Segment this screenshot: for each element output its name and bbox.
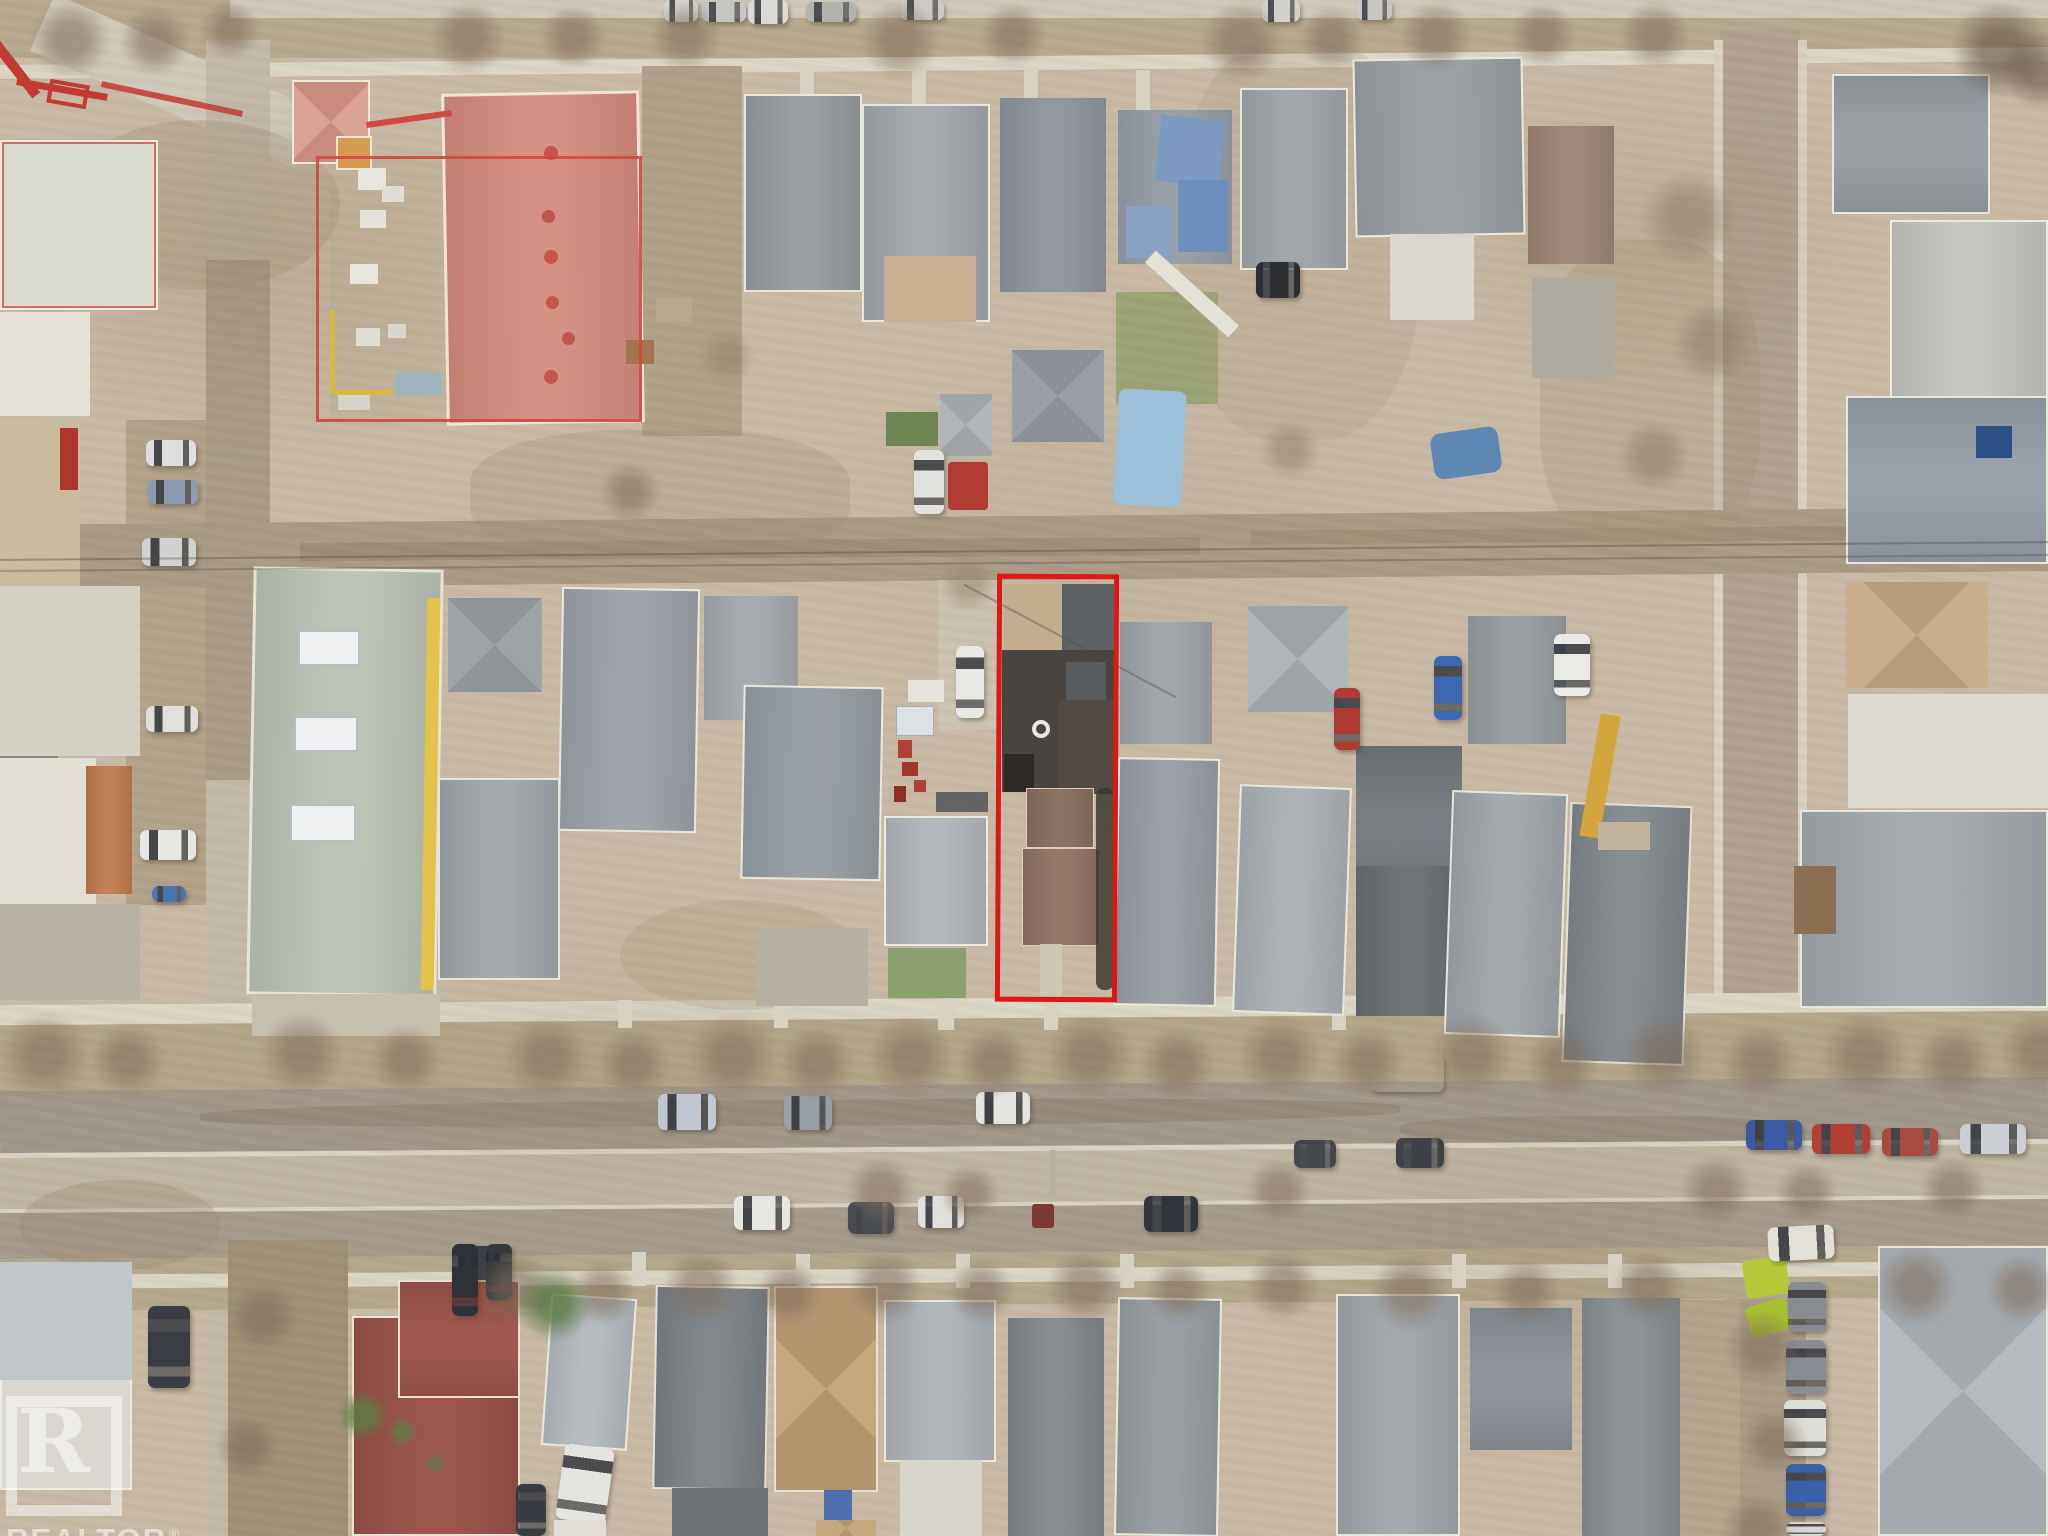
bare-tree [430, 0, 506, 76]
blue-tarp-patch-2 [1178, 180, 1228, 252]
bare-tree [1620, 0, 1690, 70]
boulevard-tree [1722, 1024, 1798, 1100]
red-car [1334, 688, 1360, 750]
boulevard-tree [1622, 1014, 1706, 1098]
blue-cart [152, 886, 186, 902]
ne-house-2 [1890, 220, 2048, 400]
parked-car [142, 538, 196, 566]
east-house-2 [1232, 784, 1352, 1016]
boulevard-tree [1046, 1012, 1134, 1100]
boulevard-tree [1140, 1026, 1216, 1102]
gray-flat-building [0, 904, 140, 1000]
brown-shed [1794, 866, 1836, 934]
street-car-white [734, 1196, 790, 1230]
south-house-9 [1470, 1308, 1572, 1450]
lot-west-canopy [908, 680, 944, 702]
red-equipment [914, 780, 926, 792]
white-building-west [0, 312, 90, 416]
front-walk [1452, 1254, 1466, 1288]
realtor-logo-letter: R [17, 1403, 90, 1480]
street-car-dark [1144, 1196, 1198, 1232]
top-street-pavement [230, 0, 2048, 18]
boulevard-tree [1428, 1012, 1514, 1098]
s-boulevard-tree [948, 1258, 1014, 1324]
lot-west-lawn [888, 948, 966, 998]
median-tree [1776, 1162, 1838, 1224]
street-tree [1740, 1408, 1808, 1476]
se-parked-car-blue [1786, 1464, 1826, 1516]
s-boulevard-tree [1612, 1250, 1686, 1324]
boulevard-tree [1332, 1026, 1404, 1098]
white-building-southwest [0, 758, 96, 906]
east-house-1 [1114, 757, 1220, 1007]
house-north-3 [1000, 98, 1106, 292]
parked-car [148, 480, 198, 504]
east-garage-1 [1120, 622, 1212, 744]
bare-tree [980, 2, 1046, 68]
sw-dark-car [148, 1306, 190, 1388]
bare-tree [1400, 0, 1472, 72]
south-house-5-extension [900, 1460, 982, 1536]
garage-north-7 [1532, 278, 1614, 378]
street-car [658, 1094, 716, 1130]
dirt-patch-6 [20, 1180, 220, 1270]
bare-tree [1510, 2, 1576, 68]
s-boulevard-tree [1370, 1252, 1450, 1332]
red-equipment [902, 762, 918, 776]
yard-tree [1672, 300, 1756, 384]
boulevard-tree [780, 1026, 854, 1100]
green-bush [424, 1452, 446, 1474]
white-pickup [1554, 634, 1590, 696]
mid-house-4 [740, 685, 883, 881]
picnic-table [656, 298, 692, 322]
blue-car [1434, 656, 1462, 720]
east-house-4 [1468, 616, 1566, 744]
realtor-wordmark: REALTOR [6, 1522, 167, 1536]
se-parked-car [1788, 1282, 1826, 1332]
boulevard-tree [868, 1014, 954, 1100]
crane-base [1598, 822, 1650, 850]
street-tree [1724, 1310, 1800, 1386]
south-house-3-extension [672, 1488, 768, 1536]
red-bin [1032, 1204, 1054, 1228]
white-van [956, 646, 984, 718]
street-car-dark [1294, 1140, 1336, 1168]
front-walk [632, 1252, 646, 1286]
boat-on-trailer [1429, 425, 1503, 480]
boulevard-tree [598, 1028, 670, 1100]
lot-west-neighbor-house [884, 816, 988, 946]
south-house-5 [884, 1300, 996, 1462]
pool-tarp [1113, 388, 1187, 507]
mid-house-1 [438, 778, 560, 980]
yard-tree [1618, 420, 1690, 492]
parked-car [1356, 0, 1392, 20]
green-tree [516, 1266, 592, 1342]
skylight [294, 716, 358, 752]
front-walk [1044, 1000, 1058, 1030]
bare-tree [540, 4, 606, 70]
south-vacant-lot [228, 1240, 348, 1536]
s-boulevard-tree [1146, 1258, 1212, 1324]
s-boulevard-tree [1246, 1248, 1320, 1322]
s-boulevard-tree [1492, 1258, 1560, 1326]
parked-car [146, 706, 198, 732]
blue-tarp-patch-1 [1155, 115, 1226, 187]
boulevard-tree [505, 1016, 589, 1100]
median-tree [846, 1156, 916, 1226]
s-boulevard-tree [1046, 1248, 1124, 1326]
red-crane-cab [46, 79, 90, 110]
house-north-1 [744, 94, 862, 292]
green-tree [338, 1390, 388, 1440]
parked-car [748, 0, 788, 24]
terracotta-roof-section [86, 766, 132, 894]
boulevard-tree [958, 1026, 1030, 1098]
median-tree [1680, 1154, 1752, 1226]
east-house-5 [1444, 790, 1568, 1038]
bare-tree [860, 0, 940, 80]
s-boulevard-tree [1986, 1254, 2048, 1324]
ne-house-1 [1832, 74, 1990, 214]
south-tarp-blue [824, 1490, 852, 1520]
white-rv [554, 1520, 606, 1536]
lot-west-panel [896, 706, 934, 736]
realtor-watermark: R REALTOR® [6, 1396, 181, 1536]
road-mud-smear [1400, 1116, 1800, 1142]
bare-tree [1300, 6, 1364, 70]
red-trailer [948, 462, 988, 510]
property-highlight-outline [995, 574, 1119, 1003]
skylight [298, 630, 360, 666]
east-garage-2 [1248, 606, 1348, 712]
skylight [290, 804, 356, 842]
s-boulevard-tree [848, 1248, 924, 1324]
bare-tree [30, 0, 110, 80]
black-car [1256, 262, 1300, 298]
front-walk [618, 1000, 632, 1028]
house-north-6 [1352, 57, 1525, 238]
south-house-6 [1008, 1318, 1104, 1536]
dark-suv [452, 1244, 478, 1316]
south-house-7 [1114, 1297, 1222, 1536]
parked-car [806, 2, 856, 22]
yard-tree [1260, 420, 1320, 480]
parked-car [146, 440, 196, 466]
median-tree [1920, 1156, 1986, 1222]
bare-tree [1200, 0, 1284, 84]
mid-commercial-flat [0, 586, 140, 756]
white-suv [555, 1443, 615, 1525]
red-equipment [894, 786, 906, 802]
street-tree [228, 1282, 298, 1352]
red-fence-gate [366, 110, 452, 128]
street-car-blue [1746, 1120, 1802, 1150]
dirt-patch-2 [470, 430, 850, 560]
truck-with-crane [1767, 1224, 1835, 1261]
white-car-backyard [914, 450, 944, 514]
green-shed [886, 412, 938, 446]
front-walk [1136, 70, 1150, 110]
street-tree [216, 1416, 278, 1478]
street-car-red [1882, 1128, 1938, 1156]
median-tree [1246, 1158, 1312, 1224]
ne-house-3 [1846, 396, 2048, 564]
red-fence-outline [316, 156, 642, 422]
roof-hatch-blue [1976, 426, 2012, 458]
nw-building-red-trim [2, 142, 156, 308]
green-dumpster [1742, 1255, 1791, 1299]
registered-symbol: ® [169, 1526, 181, 1536]
house-north-6-addition [1390, 234, 1474, 320]
car-parts-pile [936, 792, 988, 812]
boulevard-tree [1238, 1014, 1322, 1098]
bare-tree [200, 0, 260, 60]
garage-east-of-green-building [448, 598, 542, 692]
ne-house-5 [1800, 810, 2048, 1008]
parked-car [140, 830, 196, 860]
boulevard-tree [1820, 1012, 1908, 1100]
boulevard-tree [0, 1010, 90, 1100]
garage-north-1 [940, 394, 992, 456]
house-north-3-rear-hip [1012, 350, 1104, 442]
boulevard-tree [1916, 1024, 1992, 1100]
bare-tree [120, 6, 190, 76]
yard-tree [1640, 170, 1736, 266]
rooftop-sign-red [60, 428, 78, 490]
south-house-10 [1582, 1298, 1680, 1536]
s-boulevard-tree [756, 1260, 822, 1326]
boulevard-tree [260, 1012, 344, 1096]
realtor-wordmark-row: REALTOR® [6, 1522, 181, 1536]
street-car-silver [1960, 1124, 2026, 1154]
red-equipment [898, 740, 912, 758]
boulevard-tree [688, 1012, 778, 1102]
median-tree [940, 1164, 1000, 1224]
street-car [784, 1096, 832, 1130]
ne-house-4-tan-hip [1846, 582, 1988, 688]
street-car-red [1812, 1124, 1870, 1154]
dark-van [516, 1484, 546, 1536]
house-north-7-brown [1528, 126, 1614, 264]
blue-tarp-patch-3 [1126, 206, 1172, 258]
s-boulevard-tree [662, 1248, 740, 1326]
sw-white-house-roof [0, 1262, 132, 1380]
aerial-photo: R REALTOR® [0, 0, 2048, 1536]
mid-house-2-long [558, 587, 700, 833]
boulevard-tree [370, 1024, 442, 1096]
mid-garage-4 [756, 928, 868, 1006]
yard-tree [700, 330, 754, 384]
bare-tree [650, 0, 722, 72]
realtor-logo: R [6, 1396, 122, 1516]
south-house-4-lower [816, 1520, 876, 1536]
green-bush [388, 1418, 416, 1446]
boulevard-tree [90, 1022, 166, 1098]
street-light-pole [1050, 1150, 1056, 1196]
s-boulevard-tree [1876, 1246, 1956, 1326]
backyard-deck [884, 256, 976, 322]
house-north-5 [1240, 88, 1348, 270]
ne-building-white [1848, 694, 2048, 808]
yard-tree [600, 462, 660, 522]
boulevard-tree [1526, 1026, 1600, 1100]
street-car-dark [1396, 1138, 1444, 1168]
